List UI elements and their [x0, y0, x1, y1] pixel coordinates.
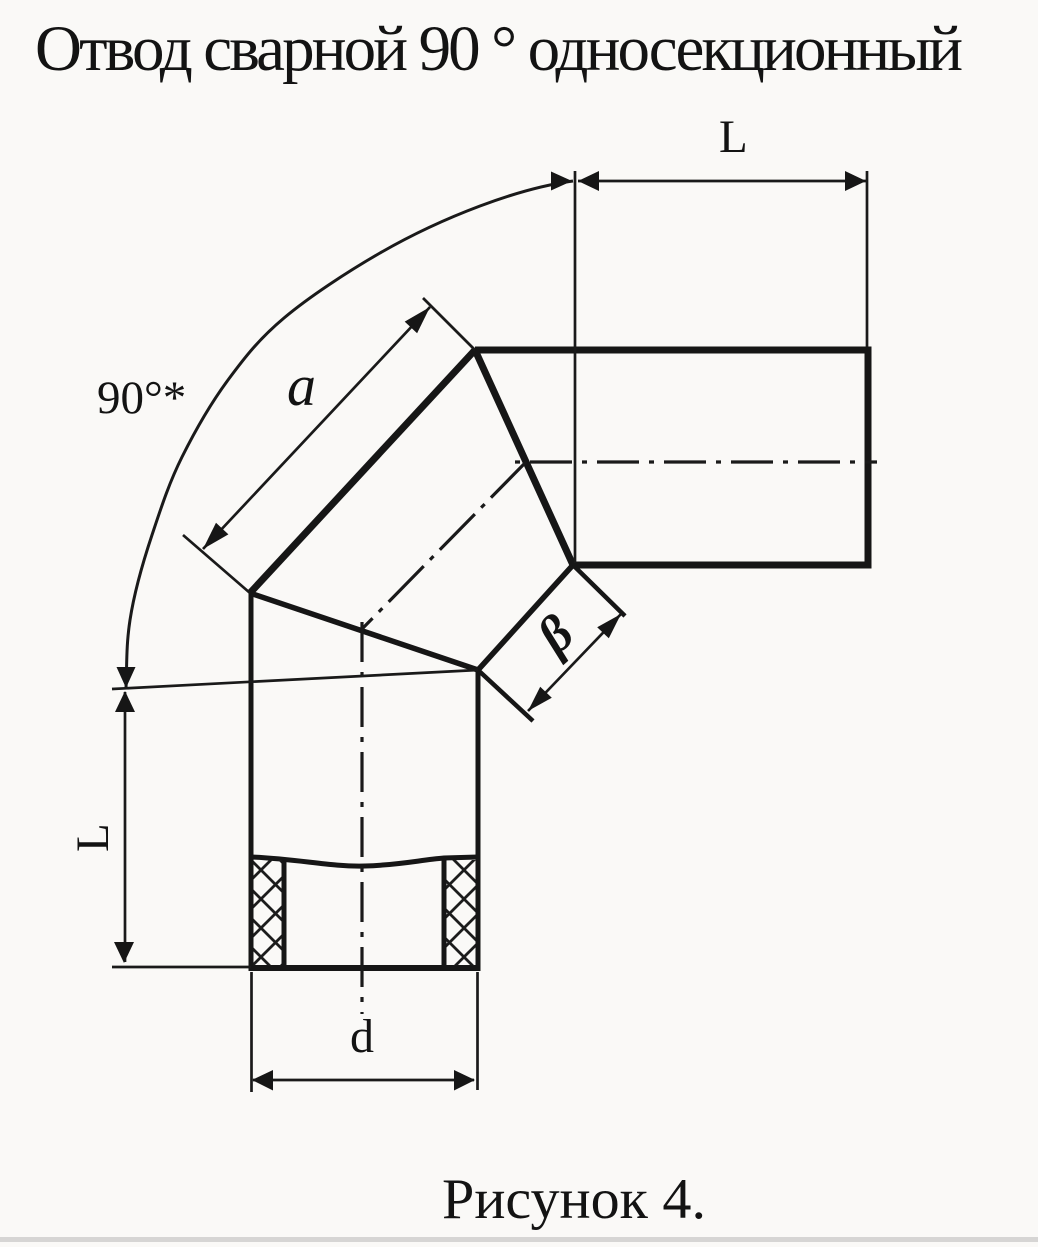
svg-text:d: d — [350, 1010, 374, 1063]
svg-text:a: a — [287, 353, 316, 418]
svg-text:L: L — [67, 823, 119, 852]
svg-text:L: L — [719, 111, 748, 163]
svg-text:90°*: 90°* — [97, 372, 186, 424]
svg-text:Рисунок 4.: Рисунок 4. — [442, 1168, 706, 1231]
svg-text:Отвод сварной 90 ° односекцион: Отвод сварной 90 ° односекционный — [35, 13, 963, 85]
